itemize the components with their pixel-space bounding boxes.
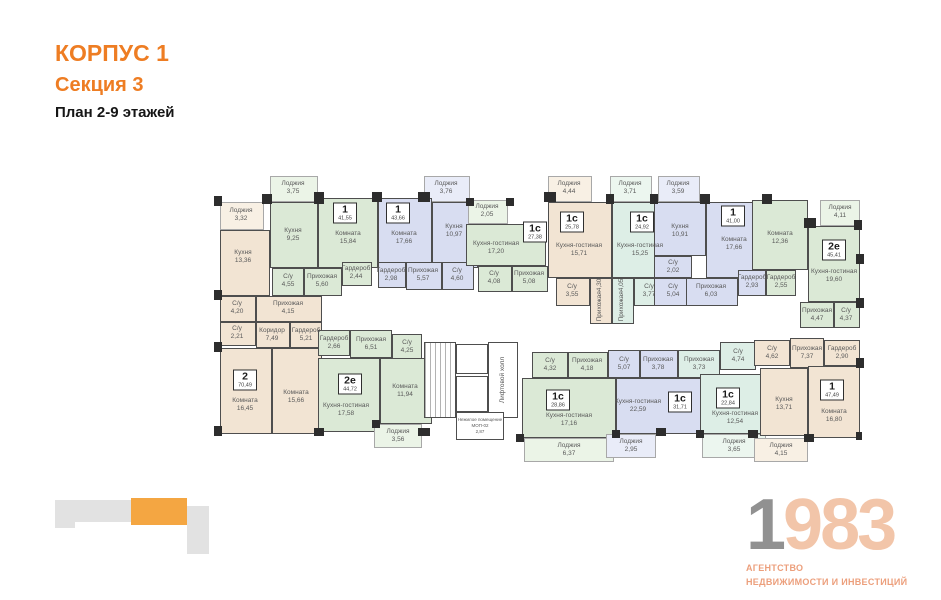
room-label: Лоджия3,65 (722, 438, 745, 454)
room-label: Лоджия3,75 (281, 180, 304, 196)
wall-segment (314, 428, 324, 436)
apartment-badge: 1с27,38 (523, 221, 547, 242)
room-label: Прихожая4,30 (596, 279, 604, 322)
wall-segment (214, 426, 222, 436)
room-label: С/у5,07 (618, 356, 631, 372)
room-label: Лоджия3,71 (618, 180, 641, 196)
wall-segment (214, 290, 222, 300)
room-label: Прихожая5,08 (514, 270, 544, 286)
room-label: Прихожая6,03 (696, 283, 726, 299)
apartment-badge: 1с25,78 (560, 211, 584, 232)
wall-segment (516, 434, 524, 442)
wall-segment (418, 428, 430, 436)
room-rect (318, 358, 380, 432)
wall-segment (804, 434, 814, 442)
room-label: Кухня10,91 (671, 223, 688, 239)
wall-segment (856, 432, 862, 440)
room-rect (456, 344, 488, 374)
room-label: Комната15,66 (283, 389, 308, 405)
room-label: Лоджия4,44 (557, 180, 580, 196)
room-label: С/у2,21 (231, 325, 244, 341)
logo-subtitle-line2: НЕДВИЖИМОСТИ И ИНВЕСТИЦИЙ (746, 577, 907, 587)
wall-segment (418, 192, 430, 202)
page: { "header": { "building": "КОРПУС 1", "s… (0, 0, 941, 600)
wall-segment (214, 196, 222, 206)
room-label: С/у4,25 (401, 339, 414, 355)
wall-segment (372, 420, 380, 428)
apartment-badge: 1с24,92 (630, 211, 654, 232)
room-label: Прихожая4,47 (802, 307, 832, 323)
room-rect (808, 366, 860, 438)
room-label: Лоджия2,95 (619, 438, 642, 454)
room-label: Прихожая5,57 (408, 267, 438, 283)
apartment-badge: 141,55 (333, 202, 357, 223)
room-label: С/у5,04 (667, 283, 680, 299)
wall-segment (856, 254, 864, 264)
room-label: С/у4,55 (282, 273, 295, 289)
logo-digits: 1983 (746, 496, 916, 555)
room-label: Лоджия3,32 (229, 207, 252, 223)
room-label: С/у4,37 (840, 307, 853, 323)
wall-segment (656, 428, 666, 436)
room-label: С/у4,74 (732, 348, 745, 364)
room-label: Прихожая4,18 (572, 357, 602, 373)
room-label: Лоджия4,15 (769, 442, 792, 458)
section-title: Секция 3 (55, 74, 144, 97)
room-rect (456, 376, 488, 412)
room-label: С/у4,62 (766, 345, 779, 361)
room-label: Кухня10,97 (445, 223, 462, 239)
room-label: С/у4,32 (544, 357, 557, 373)
room-label: Комната17,66 (391, 230, 416, 246)
wall-segment (804, 218, 816, 228)
room-label: Кухня9,25 (284, 227, 301, 243)
room-label: Гардероб2,55 (767, 274, 796, 290)
room-label: С/у3,55 (566, 283, 579, 299)
apartment-badge: 270,49 (233, 369, 257, 390)
wall-segment (856, 358, 864, 368)
wall-segment (466, 198, 474, 206)
room-label: Лоджия4,11 (828, 204, 851, 220)
room-label: Кухня-гостиная12,54 (712, 410, 758, 426)
apartment-badge: 141,00 (721, 205, 745, 226)
room-label: Комната17,66 (721, 236, 746, 252)
logo-1983: 1983 АГЕНТСТВОНЕДВИЖИМОСТИ И ИНВЕСТИЦИЙ (746, 496, 916, 589)
room-label: Прихожая3,73 (684, 356, 714, 372)
room-label: Гардероб2,90 (828, 345, 857, 361)
building-title: КОРПУС 1 (55, 40, 169, 67)
room-label: Кухня-гостиная19,60 (811, 268, 857, 284)
wall-segment (762, 194, 772, 204)
room-label: Комната12,36 (767, 230, 792, 246)
room-label: Кухня-гостиная22,59 (615, 398, 661, 414)
room-label: С/у2,02 (667, 259, 680, 275)
wall-segment (314, 192, 324, 204)
room-label: С/у3,77 (643, 283, 656, 299)
room-label: Лоджия2,05 (475, 203, 498, 219)
room-label: Прихожая3,78 (643, 356, 673, 372)
minimap-section[interactable] (75, 500, 131, 522)
wall-segment (696, 430, 704, 438)
room-label: Гардероб2,44 (342, 265, 371, 281)
room-label: Прихожая4,15 (273, 300, 303, 316)
room-label: Кухня-гостиная17,16 (546, 412, 592, 428)
wall-segment (856, 298, 864, 308)
room-label: Гардероб2,98 (377, 267, 406, 283)
room-label: Комната16,80 (821, 408, 846, 424)
logo-subtitle-line1: АГЕНТСТВО (746, 563, 803, 573)
room-label: С/у4,20 (231, 300, 244, 316)
room-rect (424, 342, 456, 418)
apartment-badge: 147,49 (820, 379, 844, 400)
room-label: Нежилое помещение МОП-022,87 (457, 417, 503, 435)
room-label: Кухня13,71 (775, 396, 792, 412)
minimap-section[interactable] (55, 500, 75, 528)
room-label: Лоджия3,76 (434, 180, 457, 196)
wall-segment (262, 194, 272, 204)
room-label: Лоджия6,37 (557, 442, 580, 458)
wall-segment (214, 342, 222, 352)
room-label: Прихожая7,37 (792, 345, 822, 361)
plan-title: План 2-9 этажей (55, 104, 175, 121)
room-label: Комната16,45 (232, 397, 257, 413)
room-label: Гардероб5,21 (292, 327, 321, 343)
room-label: Кухня-гостиная15,71 (556, 242, 602, 258)
room-label: Комната11,94 (392, 383, 417, 399)
minimap-section-active[interactable] (131, 498, 187, 525)
room-label: Лоджия3,59 (666, 180, 689, 196)
wall-segment (700, 194, 710, 204)
minimap-section[interactable] (187, 506, 209, 554)
wall-segment (606, 194, 614, 204)
room-label: Гардероб2,66 (320, 335, 349, 351)
room-label: Кухня-гостиная17,58 (323, 402, 369, 418)
room-label: Прихожая6,51 (356, 336, 386, 352)
logo-digit-gray: 1 (746, 485, 783, 565)
logo-subtitle: АГЕНТСТВОНЕДВИЖИМОСТИ И ИНВЕСТИЦИЙ (746, 562, 916, 589)
room-label: Прихожая4,05 (618, 279, 626, 322)
room-label: С/у4,08 (488, 270, 501, 286)
room-rect (808, 226, 860, 302)
apartment-badge: 2е44,72 (338, 373, 362, 394)
room-label: Гардероб2,93 (738, 274, 767, 290)
room-rect (220, 348, 272, 434)
room-label: Комната15,84 (335, 230, 360, 246)
room-label: Кухня13,36 (234, 249, 251, 265)
wall-segment (372, 192, 382, 202)
apartment-badge: 1с31,71 (668, 391, 692, 412)
wall-segment (612, 430, 620, 438)
logo-digits-salmon: 983 (783, 485, 894, 565)
wall-segment (854, 220, 862, 230)
minimap (55, 498, 215, 560)
room-label: Кухня-гостиная17,20 (473, 240, 519, 256)
wall-segment (506, 198, 514, 206)
wall-segment (544, 192, 556, 202)
wall-segment (650, 194, 658, 204)
room-label: Коридор7,49 (259, 327, 285, 343)
apartment-badge: 1с22,84 (716, 387, 740, 408)
apartment-badge: 1с28,86 (546, 389, 570, 410)
room-label: Прихожая5,60 (307, 273, 337, 289)
wall-segment (748, 430, 758, 438)
apartment-badge: 143,66 (386, 202, 410, 223)
apartment-badge: 2е45,41 (822, 239, 846, 260)
room-label: Лоджия3,56 (386, 428, 409, 444)
floor-plan: Лоджия3,32Кухня13,36С/у4,20С/у2,21Прихож… (214, 158, 864, 468)
room-label: С/у4,60 (451, 267, 464, 283)
room-label: Кухня-гостиная15,25 (617, 242, 663, 258)
room-label: Лифтовой холл (499, 357, 507, 403)
